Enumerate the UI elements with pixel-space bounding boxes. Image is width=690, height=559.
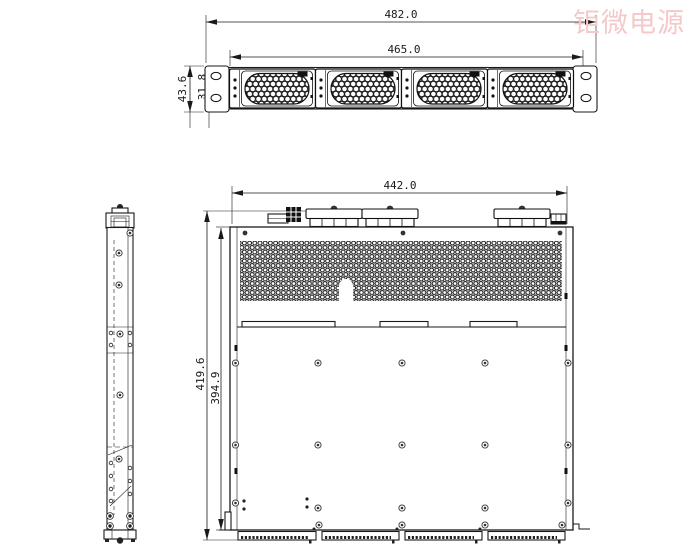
bracket-right — [573, 524, 590, 529]
side-bottom-knob — [117, 537, 123, 543]
dim-label-front-width-outer: 482.0 — [384, 8, 417, 21]
fan-bars — [238, 532, 565, 544]
bracket-left — [225, 512, 231, 530]
dim-label-front-height: 43.6 — [176, 76, 189, 103]
top-view: 442.0 419.6 394.9 — [194, 179, 590, 544]
fan-module-4 — [488, 69, 574, 108]
side-washer-screw — [127, 523, 134, 530]
rear-connector-small-left — [268, 207, 301, 223]
engineering-drawing-page: 482.0 465.0 43.6 31.8 — [0, 0, 690, 559]
chassis-screw — [243, 231, 248, 236]
side-view — [104, 204, 136, 544]
fan-module-2 — [316, 69, 402, 108]
vent-perforation — [240, 241, 562, 301]
rear-terminal-block-2 — [362, 206, 418, 227]
drawing-canvas: 482.0 465.0 43.6 31.8 — [0, 0, 690, 559]
side-screw — [116, 282, 122, 288]
mounting-ear-right — [573, 66, 597, 112]
side-screw — [116, 250, 122, 256]
side-top-cap — [106, 213, 134, 228]
side-screw — [116, 456, 122, 462]
dim-label-top-depth-inner: 394.9 — [209, 371, 222, 404]
side-screw — [127, 230, 133, 236]
rear-terminal-block-1 — [306, 206, 362, 227]
fan-module-1 — [230, 69, 316, 108]
fan-module-3 — [402, 69, 488, 108]
side-washer-screw — [107, 523, 114, 530]
rear-connector-small-right — [551, 214, 566, 224]
side-washer-screw — [107, 513, 114, 520]
side-screw — [117, 331, 123, 337]
front-view: 482.0 465.0 43.6 31.8 — [176, 8, 597, 128]
chassis-screw — [558, 231, 563, 236]
side-screw — [117, 392, 123, 398]
side-body — [107, 228, 133, 531]
chassis-screw — [401, 231, 406, 236]
side-washer-screw — [127, 513, 134, 520]
dim-label-top-width: 442.0 — [383, 179, 416, 192]
watermark-text: 钜微电源 — [573, 8, 685, 39]
rear-terminal-block-3 — [494, 206, 550, 227]
mounting-ear-left — [205, 66, 229, 112]
dim-label-top-depth-outer: 419.6 — [194, 357, 207, 390]
dim-label-front-width-inner: 465.0 — [387, 43, 420, 56]
